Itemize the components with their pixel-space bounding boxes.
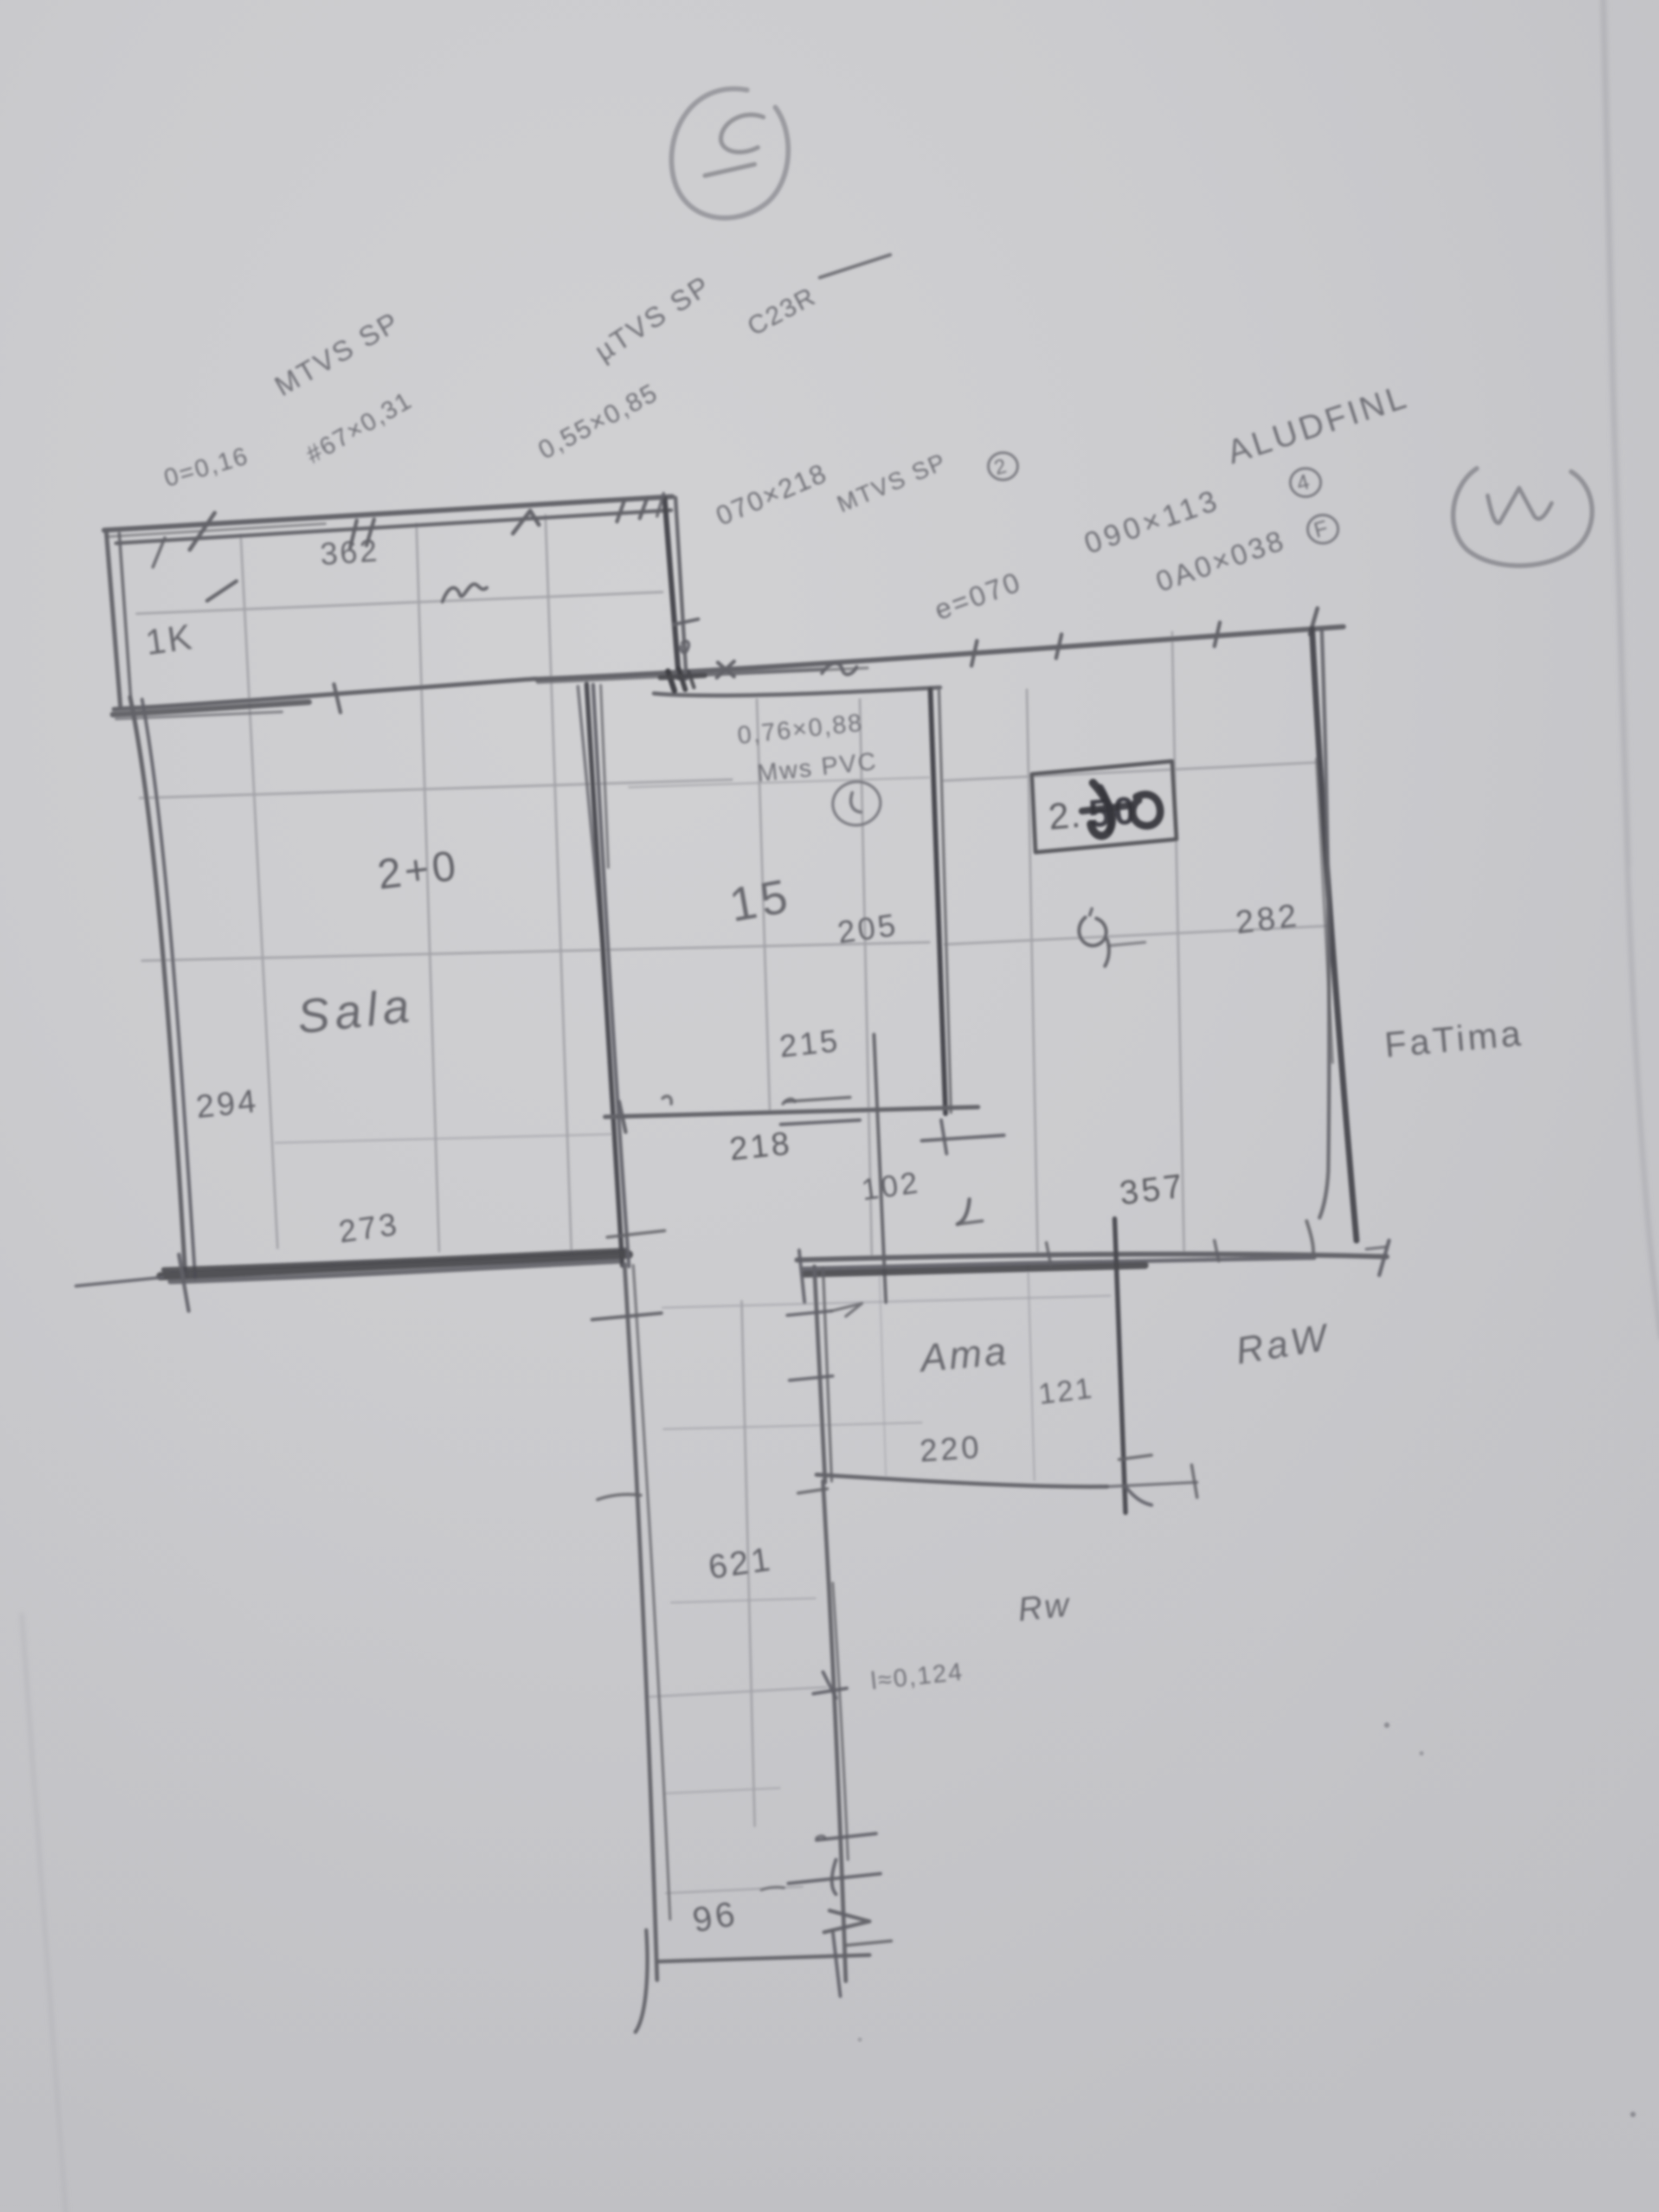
svg-text:220: 220 <box>918 1429 983 1469</box>
svg-text:Ama: Ama <box>916 1329 1010 1380</box>
svg-text:15: 15 <box>725 868 795 931</box>
svg-text:218: 218 <box>728 1124 793 1167</box>
svg-text:96: 96 <box>690 1893 741 1939</box>
svg-text:282: 282 <box>1233 897 1301 941</box>
svg-text:294: 294 <box>194 1082 260 1125</box>
svg-text:1K: 1K <box>143 616 196 663</box>
svg-text:2+0: 2+0 <box>375 841 461 898</box>
svg-text:Rw: Rw <box>1016 1586 1072 1629</box>
svg-text:121: 121 <box>1037 1372 1096 1411</box>
svg-text:215: 215 <box>778 1023 842 1064</box>
svg-text:2.: 2. <box>1047 794 1083 838</box>
svg-text:357: 357 <box>1117 1167 1187 1212</box>
svg-text:362: 362 <box>319 533 380 572</box>
